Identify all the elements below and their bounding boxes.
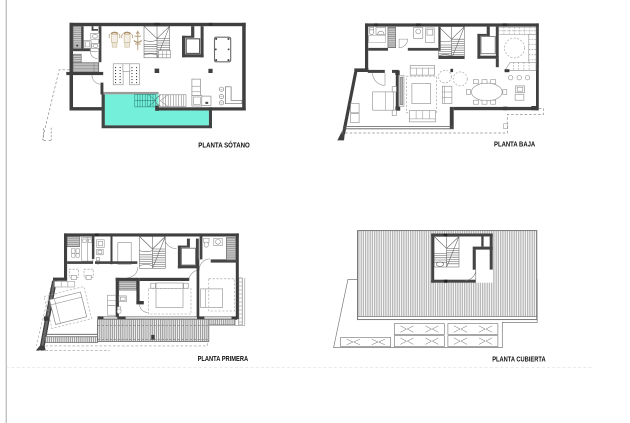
- svg-text:PLANTA CUBIERTA: PLANTA CUBIERTA: [492, 357, 545, 364]
- svg-text:PLANTA BAJA: PLANTA BAJA: [494, 141, 535, 148]
- svg-text:PLANTA PRIMERA: PLANTA PRIMERA: [198, 356, 249, 363]
- svg-text:PLANTA SÓTANO: PLANTA SÓTANO: [198, 141, 250, 150]
